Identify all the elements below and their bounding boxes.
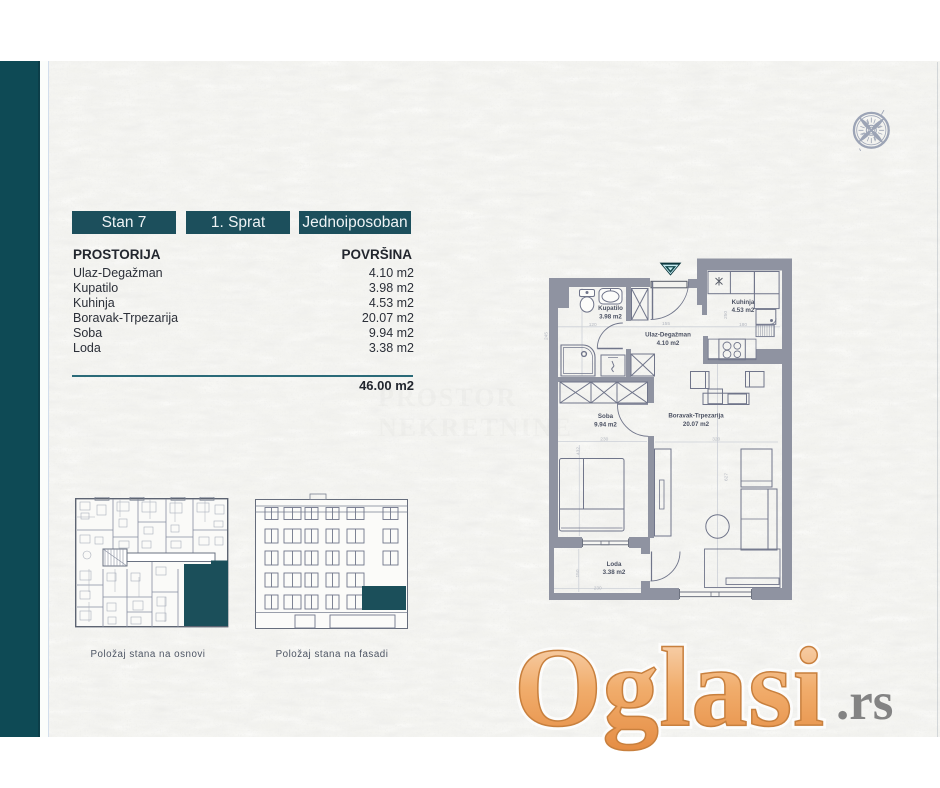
svg-text:3.38 m2: 3.38 m2 [603, 569, 626, 576]
svg-text:180: 180 [739, 322, 747, 328]
svg-text:245: 245 [544, 332, 550, 340]
svg-text:320: 320 [712, 437, 720, 443]
svg-text:20.07 m2: 20.07 m2 [683, 421, 710, 428]
svg-text:120: 120 [589, 322, 597, 328]
svg-text:9.94 m2: 9.94 m2 [594, 422, 617, 429]
svg-text:230: 230 [594, 586, 602, 592]
svg-text:Ulaz-Degažman: Ulaz-Degažman [645, 332, 691, 339]
svg-text:Kupatilo: Kupatilo [598, 305, 623, 312]
svg-text:4.10 m2: 4.10 m2 [657, 340, 680, 347]
svg-text:432: 432 [575, 447, 581, 455]
svg-text:4.53 m2: 4.53 m2 [732, 307, 755, 314]
svg-text:Kuhinja: Kuhinja [732, 299, 755, 306]
svg-text:3.98 m2: 3.98 m2 [599, 314, 622, 321]
svg-text:150: 150 [575, 569, 581, 577]
svg-text:250: 250 [723, 311, 729, 319]
svg-text:155: 155 [662, 321, 670, 327]
svg-text:Oglasi: Oglasi [514, 628, 825, 751]
svg-text:.rs: .rs [836, 673, 893, 731]
svg-text:627: 627 [723, 473, 729, 481]
svg-text:Soba: Soba [598, 413, 614, 420]
svg-text:Loda: Loda [607, 561, 622, 568]
svg-text:230: 230 [600, 437, 608, 443]
svg-text:Boravak-Trpezarija: Boravak-Trpezarija [668, 413, 724, 420]
